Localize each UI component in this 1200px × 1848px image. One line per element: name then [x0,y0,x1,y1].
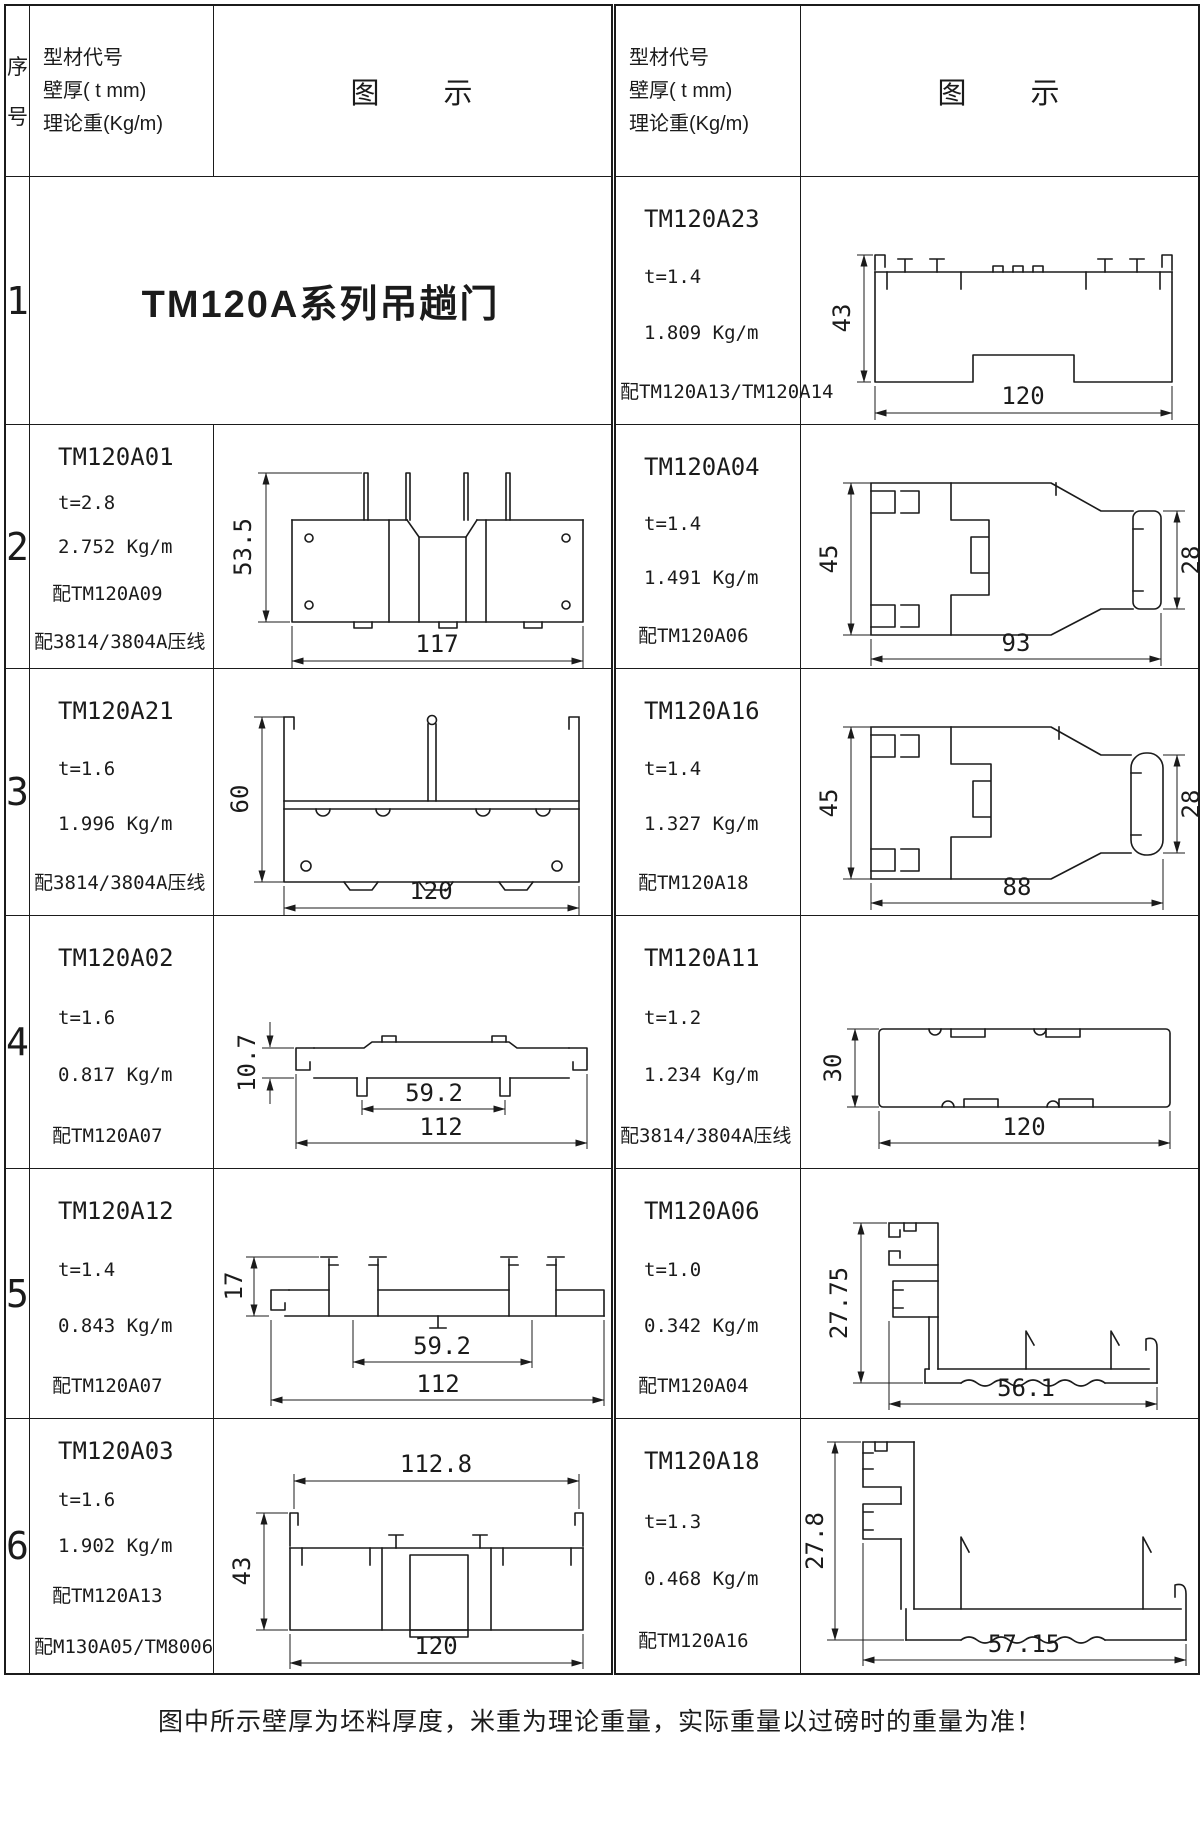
header-diagram-label-right: 图 示 [801,6,1198,177]
row-number-2: 2 [6,425,30,669]
info-tm120a11: TM120A11 t=1.2 1.234 Kg/m 配3814/3804A压线 [616,916,801,1169]
info-tm120a02: TM120A02 t=1.6 0.817 Kg/m 配TM120A07 [30,916,214,1169]
diagram-tm120a11: 30 120 [801,916,1198,1169]
info-tm120a01: TM120A01 t=2.8 2.752 Kg/m 配TM120A09 配381… [30,425,214,669]
header-seq-column: 序 号 [6,6,30,177]
header-diagram-label-left: 图 示 [214,6,611,177]
info-tm120a18: TM120A18 t=1.3 0.468 Kg/m 配TM120A16 [616,1419,801,1673]
dim-width: 112 [416,1370,459,1398]
dim-width: 56.1 [997,1374,1055,1402]
wall-thickness: t=1.6 [30,1489,213,1511]
series-title: TM120A系列吊趟门 [30,177,611,425]
profile-outline [290,1513,583,1637]
header-profile-code-label: 型材代号 [43,42,213,75]
dim-inner-width: 59.2 [413,1332,471,1360]
info-tm120a23: TM120A23 t=1.4 1.809 Kg/m 配TM120A13/TM12… [616,177,801,425]
dim-height: 17 [220,1272,248,1301]
dim-height: 45 [815,789,843,818]
unit-weight: 0.468 Kg/m [616,1568,800,1590]
matching-bead: 配3814/3804A压线 [616,1121,800,1148]
unit-weight: 1.902 Kg/m [30,1535,213,1557]
info-tm120a21: TM120A21 t=1.6 1.996 Kg/m 配3814/3804A压线 [30,669,214,916]
profile-outline [879,1029,1170,1107]
profile-code: TM120A16 [616,697,800,725]
cross-section-drawing [801,669,1198,916]
dim-width: 57.15 [988,1630,1060,1658]
row-number-4: 4 [6,916,30,1169]
info-tm120a06: TM120A06 t=1.0 0.342 Kg/m 配TM120A04 [616,1169,801,1419]
dim-width: 88 [1003,873,1032,901]
diagram-tm120a02: 10.7 59.2 112 [214,916,611,1169]
header-unit-weight-label: 理论重(Kg/m) [629,108,800,141]
dim-width: 120 [409,877,452,905]
matching-profile: 配TM120A07 [30,1371,213,1398]
dim-top-width: 112.8 [400,1450,472,1478]
wall-thickness: t=1.4 [616,758,800,780]
wall-thickness: t=1.0 [616,1259,800,1281]
wall-thickness: t=1.2 [616,1007,800,1029]
matching-profile: 配TM120A04 [616,1371,800,1398]
profile-code: TM120A23 [616,205,800,233]
profile-code: TM120A03 [30,1437,213,1465]
profile-outline [271,1257,604,1328]
wall-thickness: t=1.4 [30,1259,213,1281]
diagram-tm120a18: 27.8 57.15 [801,1419,1198,1673]
wall-thickness: t=1.6 [30,1007,213,1029]
profile-outline [875,255,1172,382]
wall-thickness: t=1.4 [616,266,800,288]
matching-profile: 配TM120A09 [30,579,213,606]
info-tm120a12: TM120A12 t=1.4 0.843 Kg/m 配TM120A07 [30,1169,214,1419]
row-number-6: 6 [6,1419,30,1673]
matching-profile: 配TM120A13 [30,1581,213,1608]
cross-section-drawing [214,425,611,669]
wall-thickness: t=1.3 [616,1511,800,1533]
info-tm120a03: TM120A03 t=1.6 1.902 Kg/m 配TM120A13 配M13… [30,1419,214,1673]
footer-note: 图中所示壁厚为坯料厚度，米重为理论重量，实际重量以过磅时的重量为准！ [0,1702,1200,1738]
unit-weight: 1.491 Kg/m [616,567,800,589]
dim-right-height: 28 [1177,546,1200,575]
matching-profiles: 配TM120A13/TM120A14 [616,377,800,404]
unit-weight: 1.809 Kg/m [616,322,800,344]
dim-height: 45 [815,545,843,574]
wall-thickness: t=1.6 [30,758,213,780]
diagram-tm120a16: 45 28 88 [801,669,1198,916]
dim-width: 120 [414,1632,457,1660]
spec-table-left: 序 号 型材代号 壁厚( t mm) 理论重(Kg/m) 图 示 1 TM120… [4,4,613,1675]
dim-height: 30 [819,1054,847,1083]
dim-width: 120 [1002,1113,1045,1141]
profile-outline [284,716,579,891]
header-unit-weight-label: 理论重(Kg/m) [43,108,213,141]
cross-section-drawing [214,1169,611,1419]
profile-outline [871,727,1163,879]
diagram-tm120a01: 53.5 117 [214,425,611,669]
wall-thickness: t=1.4 [616,513,800,535]
row-number-5: 5 [6,1169,30,1419]
diagram-tm120a21: 60 120 [214,669,611,916]
diagram-tm120a03: 112.8 43 120 [214,1419,611,1673]
cross-section-drawing [801,177,1198,425]
unit-weight: 1.327 Kg/m [616,813,800,835]
profile-code: TM120A01 [30,443,213,471]
dim-height: 43 [228,1557,256,1586]
unit-weight: 1.234 Kg/m [616,1064,800,1086]
matching-profile: 配TM120A18 [616,868,800,895]
dim-height: 60 [226,785,254,814]
dim-height: 10.7 [233,1034,261,1092]
profile-code: TM120A02 [30,944,213,972]
wall-thickness: t=2.8 [30,492,213,514]
profile-code: TM120A18 [616,1447,800,1475]
header-profile-code-label: 型材代号 [629,42,800,75]
unit-weight: 0.342 Kg/m [616,1315,800,1337]
header-seq-char1: 序 [7,51,28,81]
dim-right-height: 28 [1177,790,1200,819]
unit-weight: 1.996 Kg/m [30,813,213,835]
unit-weight: 0.817 Kg/m [30,1064,213,1086]
diagram-tm120a23: 43 120 [801,177,1198,425]
spec-table-right: 型材代号 壁厚( t mm) 理论重(Kg/m) 图 示 TM120A23 t=… [614,4,1200,1675]
header-seq-char2: 号 [7,101,28,131]
dim-width: 93 [1002,629,1031,657]
matching-profile-2: 配M130A05/TM8006 [30,1632,213,1659]
matching-bead: 配3814/3804A压线 [30,868,213,895]
dim-height: 53.5 [229,518,257,576]
profile-outline [292,473,583,628]
profile-code: TM120A21 [30,697,213,725]
header-wall-thickness-label: 壁厚( t mm) [43,75,213,108]
diagram-tm120a12: 17 59.2 112 [214,1169,611,1419]
header-info-column-right: 型材代号 壁厚( t mm) 理论重(Kg/m) [616,6,801,177]
cross-section-drawing [214,916,611,1169]
header-info-column-left: 型材代号 壁厚( t mm) 理论重(Kg/m) [30,6,214,177]
dim-height: 27.75 [825,1267,853,1339]
unit-weight: 0.843 Kg/m [30,1315,213,1337]
diagram-tm120a06: 27.75 56.1 [801,1169,1198,1419]
cross-section-drawing [801,425,1198,669]
profile-outline [889,1223,1157,1386]
dim-inner-width: 59.2 [405,1079,463,1107]
matching-bead: 配3814/3804A压线 [30,627,213,654]
dim-width: 112 [419,1113,462,1141]
info-tm120a16: TM120A16 t=1.4 1.327 Kg/m 配TM120A18 [616,669,801,916]
profile-code: TM120A11 [616,944,800,972]
unit-weight: 2.752 Kg/m [30,536,213,558]
matching-profile: 配TM120A06 [616,621,800,648]
profile-outline [863,1442,1186,1643]
profile-outline [871,483,1161,635]
diagram-tm120a04: 45 28 93 [801,425,1198,669]
dim-width: 120 [1001,382,1044,410]
matching-profile: 配TM120A07 [30,1121,213,1148]
row-number-3: 3 [6,669,30,916]
dim-height: 27.8 [801,1512,829,1570]
profile-code: TM120A06 [616,1197,800,1225]
cross-section-drawing [801,916,1198,1169]
dim-width: 117 [415,630,458,658]
info-tm120a04: TM120A04 t=1.4 1.491 Kg/m 配TM120A06 [616,425,801,669]
profile-code: TM120A12 [30,1197,213,1225]
header-wall-thickness-label: 壁厚( t mm) [629,75,800,108]
row-number-1: 1 [6,177,30,425]
dim-height: 43 [828,304,856,333]
profile-code: TM120A04 [616,453,800,481]
matching-profile: 配TM120A16 [616,1626,800,1653]
